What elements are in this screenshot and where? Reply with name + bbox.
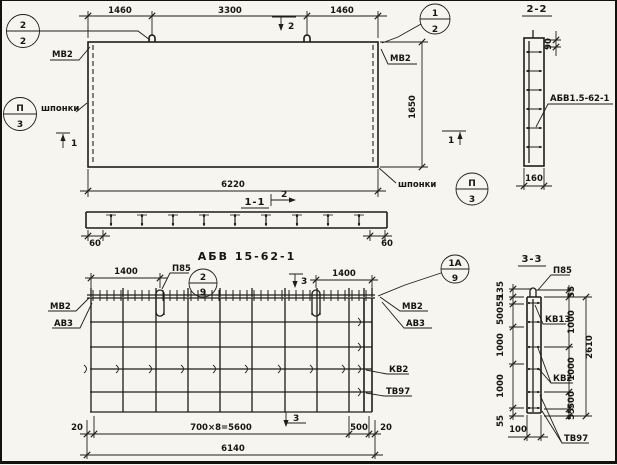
dim-3300: 3300 [218, 6, 242, 16]
svg-text:П: П [468, 179, 476, 189]
panel-dim-top: 1460 3300 1460 [79, 6, 387, 38]
svg-text:1: 1 [71, 139, 77, 149]
section-1-1-title: 1-1 [244, 197, 265, 208]
svg-text:ТВ97: ТВ97 [386, 387, 410, 397]
svg-text:500: 500 [496, 307, 506, 325]
dim-20-left: 20 [71, 423, 83, 433]
dim-1460-right: 1460 [330, 6, 354, 16]
blueprint-canvas: 1460 3300 1460 6220 1650 МВ2 МВ2 [0, 0, 617, 465]
svg-text:2: 2 [20, 37, 26, 47]
edge-double-bar [364, 298, 372, 412]
svg-text:9: 9 [200, 288, 206, 298]
svg-text:1400: 1400 [332, 269, 356, 279]
dim-1650: 1650 [408, 95, 418, 119]
svg-text:КВ2: КВ2 [389, 365, 408, 375]
svg-text:1000: 1000 [567, 310, 577, 334]
panel-outline [88, 42, 378, 167]
mesh-bottom-dims: 20 700×8=5600 500 20 6140 [71, 416, 392, 459]
svg-text:П: П [16, 104, 24, 114]
label-tv97-mesh: ТВ97 [366, 387, 412, 397]
callout-1a-9: 1А 9 [378, 255, 469, 296]
label-abv15-62-1: АБВ1.5-62-1 [536, 94, 613, 127]
svg-text:55: 55 [567, 286, 577, 298]
svg-text:2: 2 [281, 190, 287, 200]
slab-end-dims: 60 60 [81, 230, 393, 249]
svg-text:9: 9 [452, 274, 458, 284]
svg-text:2: 2 [288, 22, 294, 32]
label-mv2-mesh-right: МВ2 [380, 297, 428, 312]
label-p85-mesh: П85 [162, 264, 191, 289]
svg-text:МВ2: МВ2 [402, 302, 423, 312]
chord-ticks [90, 290, 372, 301]
svg-text:2: 2 [20, 21, 26, 31]
svg-text:55: 55 [567, 408, 577, 420]
section-3-3-view: 3-3 П85 КВ13 КВ2 ТВ97 [496, 254, 595, 444]
section-3-3-right-dims: 55 1000 1000 500 55 2610 [536, 285, 595, 420]
dim-100: 100 [508, 415, 548, 441]
section-2-2-title: 2-2 [526, 4, 547, 15]
edge-fillets [358, 318, 361, 396]
slab-webs [96, 213, 376, 227]
svg-text:1000: 1000 [496, 333, 506, 357]
svg-text:МВ2: МВ2 [52, 50, 73, 60]
dim-500: 500 [350, 423, 368, 433]
svg-text:П85: П85 [172, 264, 191, 274]
svg-text:500: 500 [567, 391, 577, 409]
svg-text:3: 3 [293, 414, 299, 424]
cut-mark-3-bottom: 3 [283, 412, 306, 427]
drawing-sheet: 1460 3300 1460 6220 1650 МВ2 МВ2 [0, 0, 617, 465]
dim-160: 160 [516, 168, 552, 190]
lifting-hooks [149, 35, 310, 42]
mesh-title: АБВ 15-62-1 [198, 250, 297, 263]
svg-text:3: 3 [469, 195, 475, 205]
svg-text:2: 2 [200, 273, 206, 283]
svg-text:2: 2 [432, 25, 438, 35]
mesh-plan-view: АБВ 15-62-1 1400 1400 П85 [48, 250, 469, 459]
label-shponki-left: шпонки [41, 104, 79, 114]
label-mv2-top-left: МВ2 [50, 47, 90, 60]
svg-text:55: 55 [496, 295, 506, 307]
cut-mark-2-side: 2 [271, 190, 296, 206]
svg-text:3: 3 [301, 277, 307, 287]
section-3-3-title: 3-3 [521, 254, 542, 265]
svg-text:МВ2: МВ2 [390, 54, 411, 64]
svg-text:1000: 1000 [567, 357, 577, 381]
svg-text:160: 160 [525, 174, 543, 184]
dim-90: 90 [544, 31, 561, 56]
svg-text:АБВ1.5-62-1: АБВ1.5-62-1 [550, 94, 609, 104]
svg-text:МВ2: МВ2 [50, 302, 71, 312]
dim-1460-left: 1460 [108, 6, 132, 16]
dim-1400-left: 1400 [85, 267, 168, 290]
panel-elevation-view: 1460 3300 1460 6220 1650 МВ2 МВ2 [3, 4, 488, 205]
svg-text:АВ3: АВ3 [406, 319, 425, 329]
callout-keys-right: П 3 шпонки [379, 168, 488, 205]
dim-2610: 2610 [585, 335, 595, 359]
svg-text:1: 1 [432, 9, 438, 19]
section-1-1-view: 1-1 2 60 60 [81, 190, 393, 249]
callout-node-1-2: 1 2 [382, 4, 450, 43]
svg-text:100: 100 [509, 425, 527, 435]
svg-text:90: 90 [544, 38, 554, 50]
dim-1400-right: 1400 [310, 269, 378, 290]
cut-mark-3-top: 3 [289, 274, 307, 288]
svg-text:АВ3: АВ3 [54, 319, 73, 329]
label-shponki-right: шпонки [398, 180, 436, 190]
vertical-bars [91, 298, 349, 412]
callout-keys-left: П 3 шпонки [3, 98, 87, 131]
dim-700x8: 700×8=5600 [190, 423, 252, 433]
dim-60-right: 60 [381, 239, 393, 249]
dim-20-right: 20 [380, 423, 392, 433]
svg-text:П85: П85 [553, 266, 572, 276]
svg-text:1А: 1А [448, 259, 461, 269]
horizontal-bars [90, 322, 372, 412]
svg-text:1: 1 [448, 136, 454, 146]
section-2-2-view: 2-2 90 АБВ1.5-62-1 160 [516, 4, 613, 190]
dim-60-left: 60 [89, 239, 101, 249]
svg-text:1000: 1000 [496, 374, 506, 398]
dim-6220: 6220 [221, 180, 245, 190]
dim-6140: 6140 [221, 444, 245, 454]
label-mv2-mesh-left: МВ2 [48, 298, 89, 312]
svg-text:1400: 1400 [114, 267, 138, 277]
cut-mark-1-left: 1 [56, 133, 77, 149]
cut-mark-2-top: 2 [272, 17, 296, 32]
label-mv2-top-right: МВ2 [381, 49, 417, 64]
svg-text:ТВ97: ТВ97 [564, 434, 588, 444]
svg-text:55: 55 [496, 415, 506, 427]
svg-text:3: 3 [17, 120, 23, 130]
panel-dim-width: 6220 [80, 169, 386, 197]
cut-mark-1-right: 1 [442, 131, 466, 146]
